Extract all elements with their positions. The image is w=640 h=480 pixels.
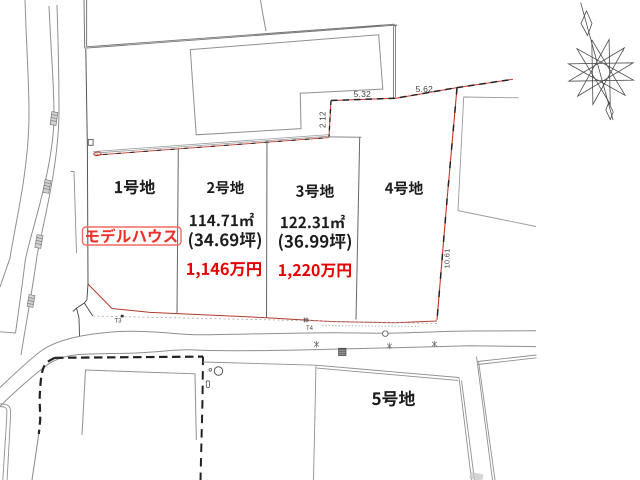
svg-text:T4: T4 — [306, 326, 314, 332]
svg-text:5.62: 5.62 — [416, 84, 434, 94]
svg-text:2.12: 2.12 — [319, 111, 328, 128]
svg-text:T3: T3 — [115, 319, 123, 325]
svg-text:10.61: 10.61 — [443, 248, 452, 268]
svg-text:5.32: 5.32 — [354, 89, 372, 99]
